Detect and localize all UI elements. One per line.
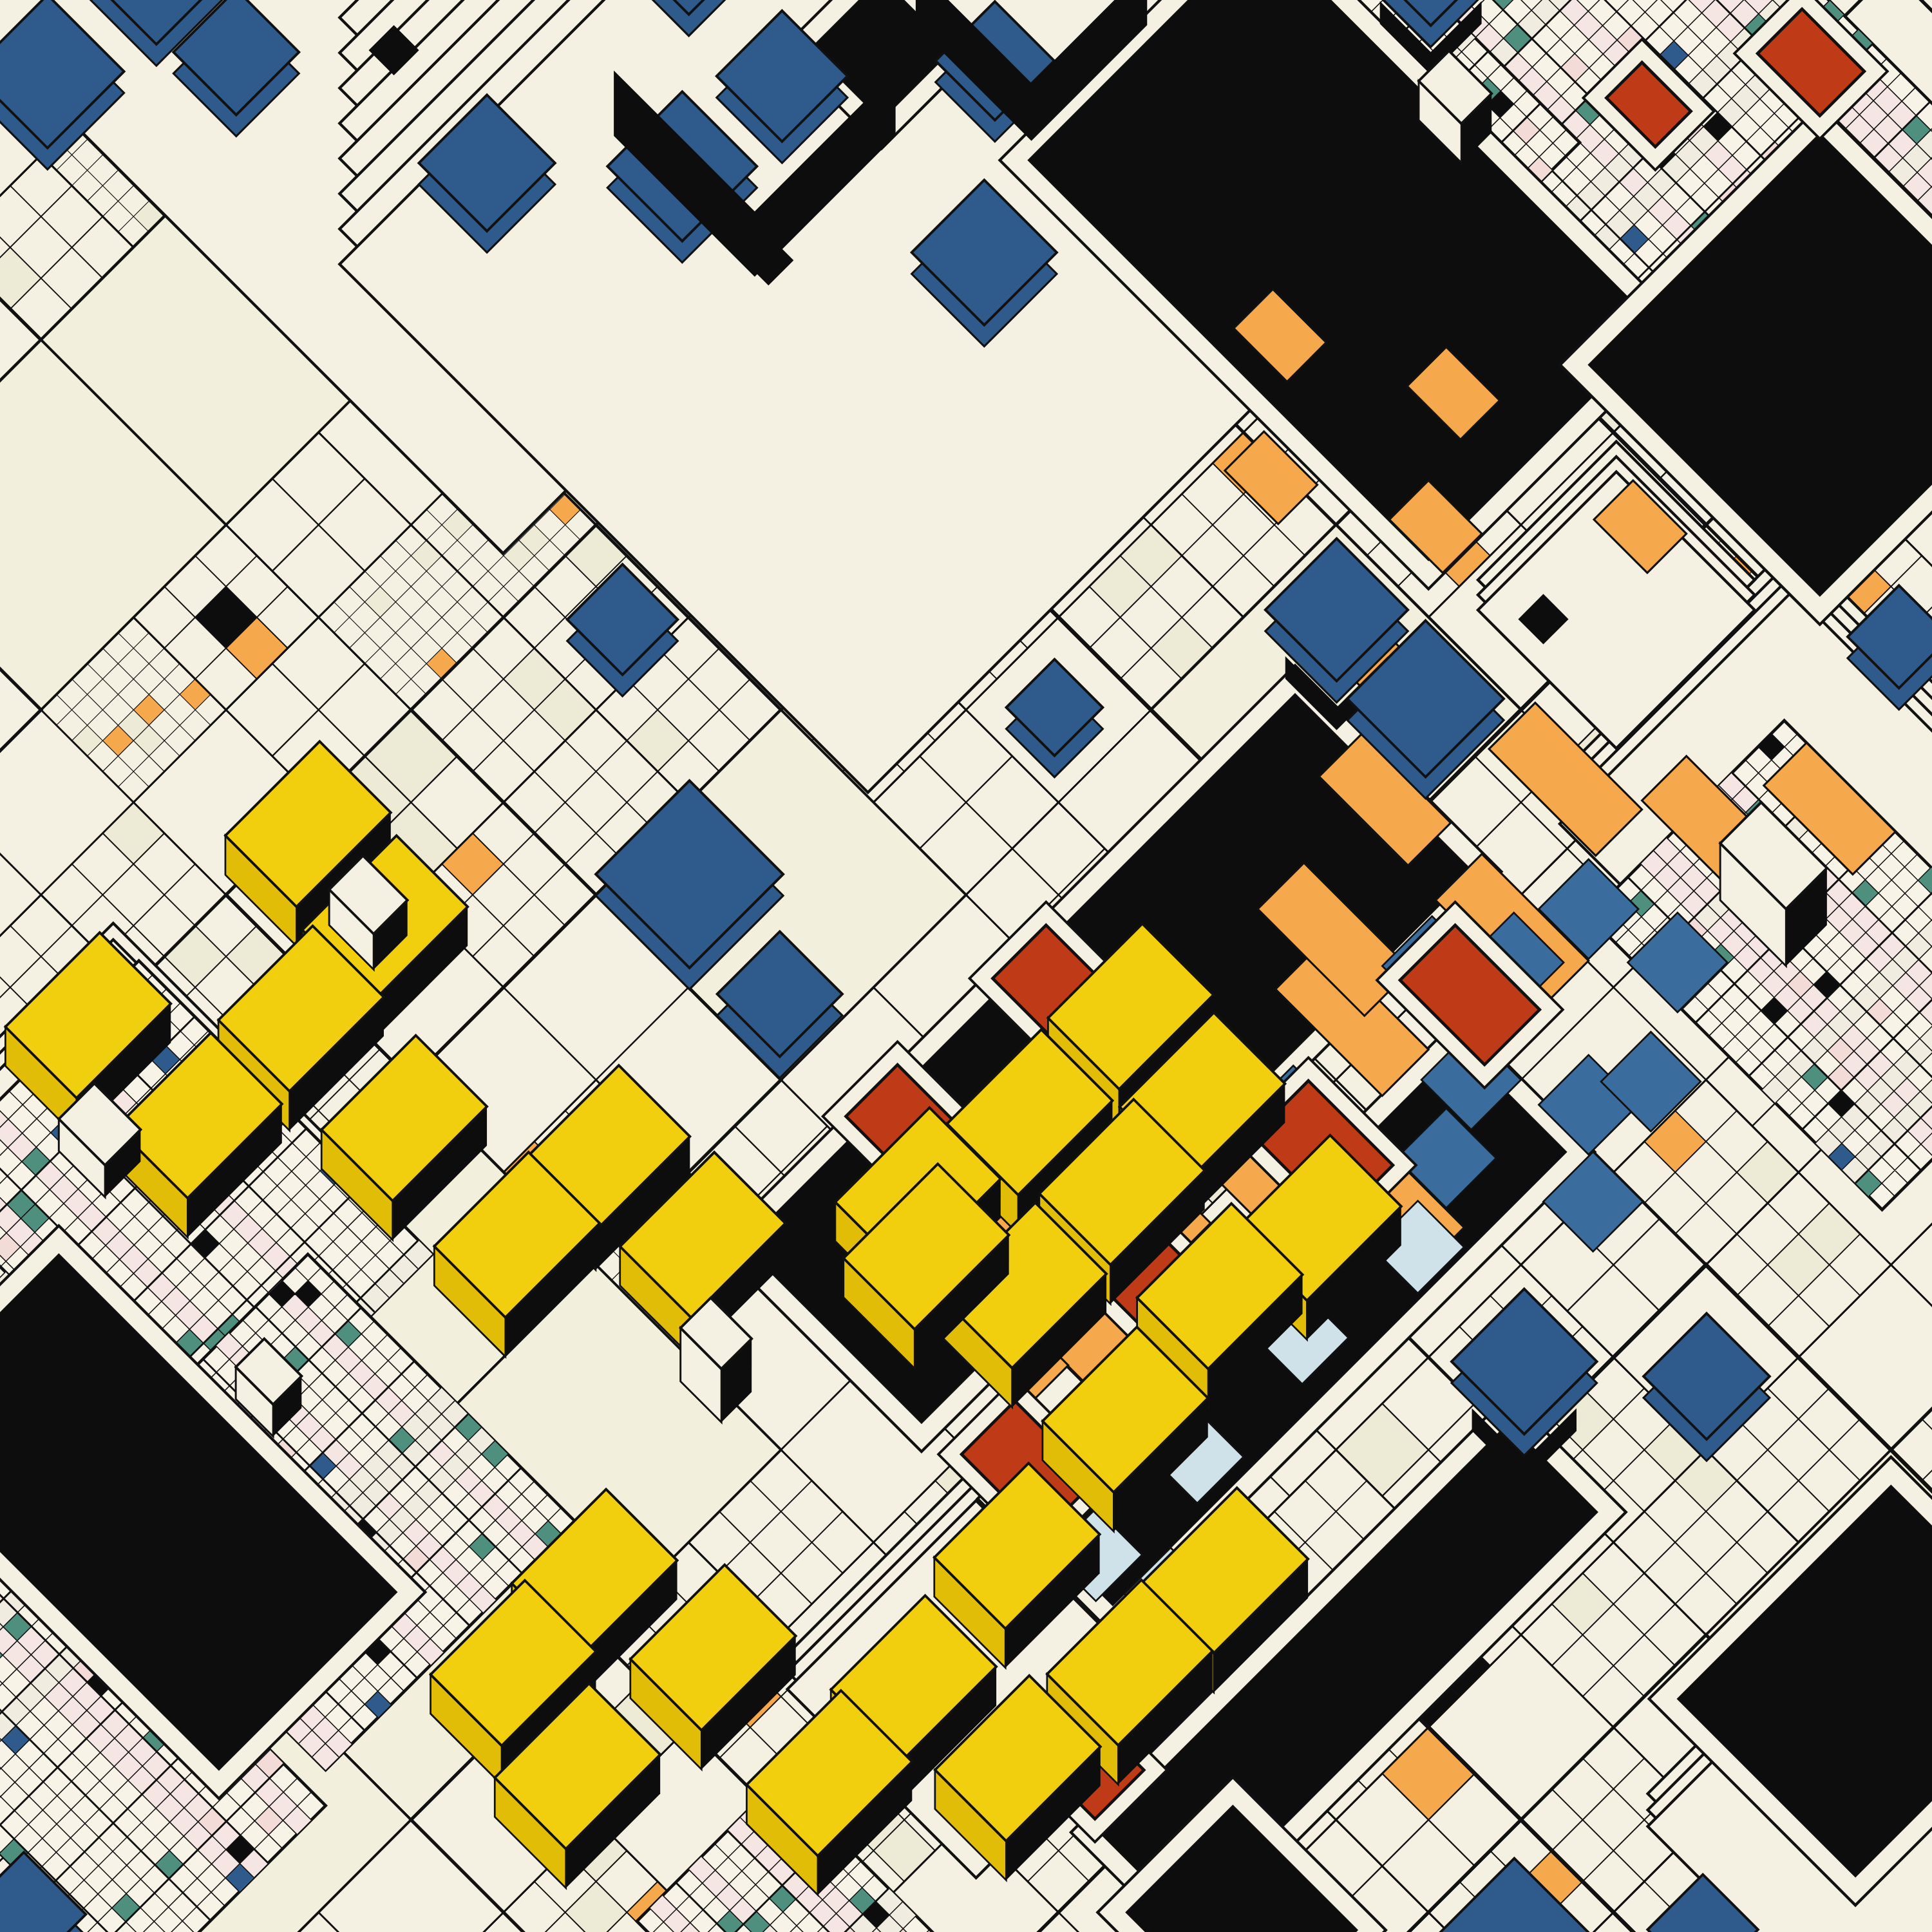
- generative-composition: [0, 0, 1932, 1932]
- artwork-root: [0, 0, 1932, 1932]
- artwork-canvas: [0, 0, 1932, 1932]
